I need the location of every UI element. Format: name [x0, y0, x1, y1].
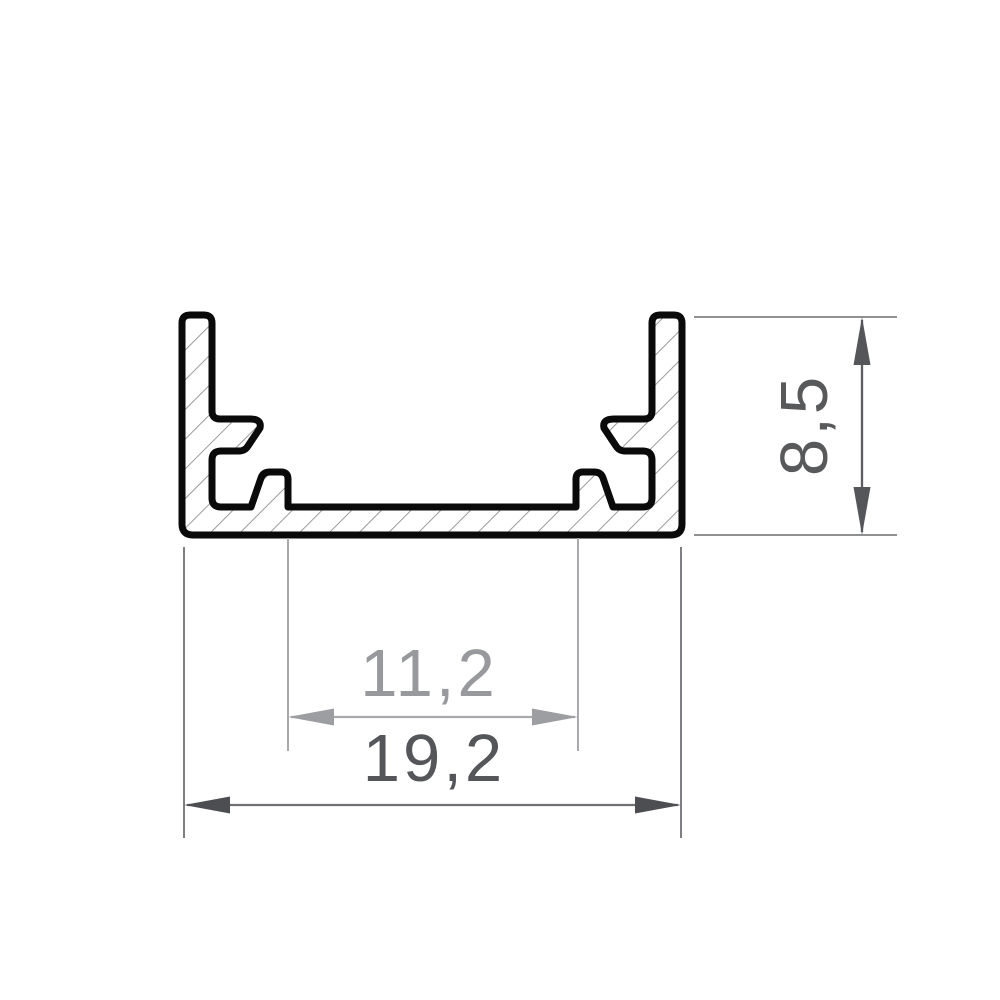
- inner-width-dim-label: 11,2: [360, 636, 497, 711]
- dimension-inner-width: 11,2: [288, 538, 578, 751]
- drawing-canvas: 8,5 11,2 19,2: [0, 0, 1000, 1000]
- height-arrow-up-icon: [854, 317, 871, 365]
- height-dim-label: 8,5: [767, 374, 842, 476]
- profile-outline: [182, 315, 682, 535]
- outer-width-arrow-right-icon: [635, 797, 681, 814]
- inner-width-arrow-right-icon: [532, 709, 578, 726]
- inner-width-arrow-left-icon: [288, 709, 334, 726]
- outer-width-dim-label: 19,2: [363, 721, 505, 796]
- outer-width-arrow-left-icon: [184, 797, 230, 814]
- height-arrow-down-icon: [854, 487, 871, 535]
- dimension-height: 8,5: [694, 317, 897, 535]
- profile-drawing: 8,5 11,2 19,2: [0, 0, 1000, 1000]
- profile-cross-section: [182, 315, 682, 535]
